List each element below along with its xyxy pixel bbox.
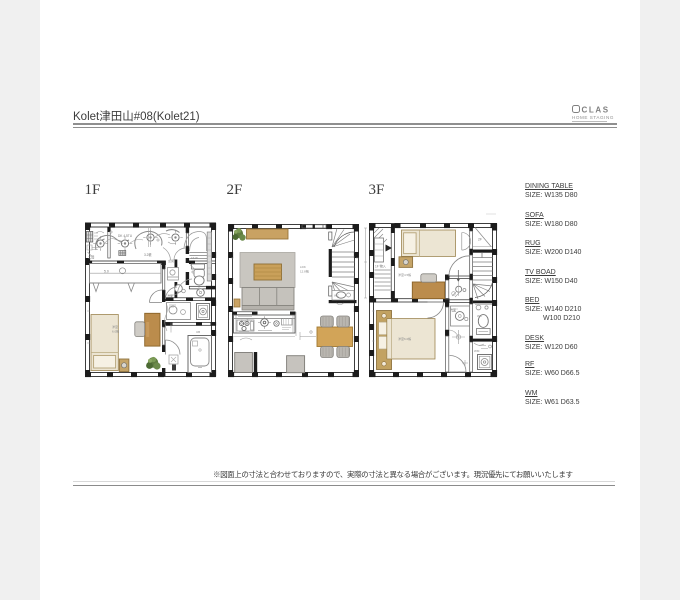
svg-text:LDK: LDK (300, 265, 306, 269)
svg-text:洋室4.5帳: 洋室4.5帳 (398, 272, 411, 277)
svg-text:2F: 2F (478, 238, 482, 242)
svg-text:玄関: 玄関 (168, 258, 174, 263)
svg-text:洋室6.0帳: 洋室6.0帳 (398, 336, 411, 341)
svg-text:6.0帳: 6.0帳 (112, 329, 119, 334)
svg-text:キッチン: キッチン (240, 318, 252, 323)
svg-text:1F 物入: 1F 物入 (375, 264, 387, 269)
svg-text:土間: 土間 (88, 255, 94, 260)
svg-text:洗面: 洗面 (167, 293, 173, 298)
svg-text:UB: UB (196, 330, 200, 334)
svg-text:洋室: 洋室 (112, 324, 118, 329)
svg-text:3.2帳: 3.2帳 (144, 252, 152, 257)
svg-text:1618: 1618 (191, 256, 198, 260)
svg-text:WC: WC (477, 314, 483, 318)
svg-text:WC: WC (334, 294, 340, 298)
svg-text:5.0: 5.0 (104, 269, 109, 273)
svg-text:DK 4.5TU: DK 4.5TU (118, 234, 133, 238)
svg-text:WM: WM (474, 349, 480, 353)
svg-text:洗面: 洗面 (450, 307, 456, 312)
svg-text:12.8帳: 12.8帳 (300, 269, 309, 274)
